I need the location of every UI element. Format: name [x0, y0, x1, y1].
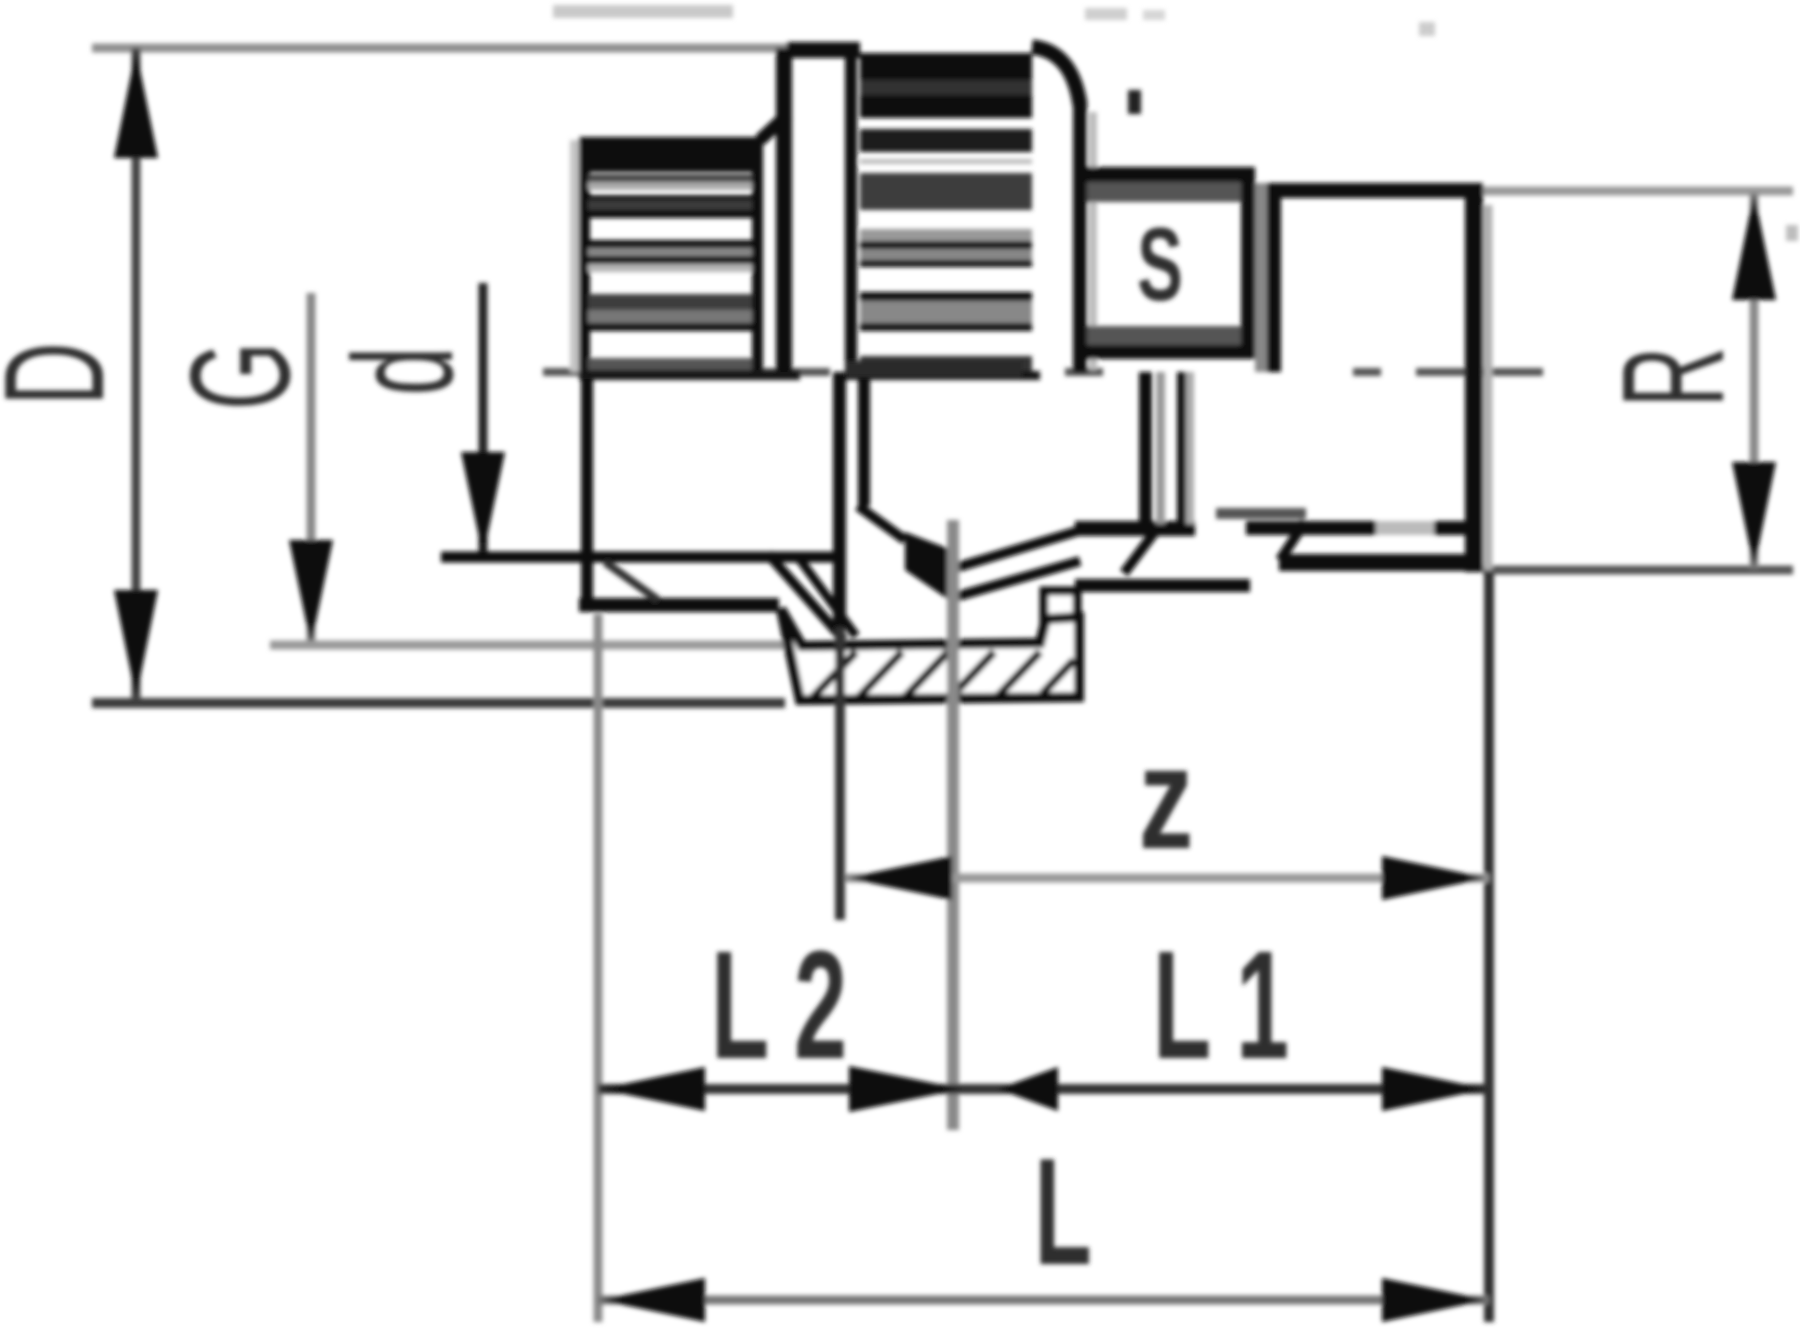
svg-text:z: z: [1139, 717, 1194, 880]
svg-text:d: d: [325, 347, 484, 396]
svg-text:L 2: L 2: [711, 920, 847, 1092]
svg-text:G: G: [162, 342, 321, 410]
svg-text:R: R: [1593, 347, 1754, 408]
svg-text:S: S: [1137, 206, 1183, 323]
svg-text:L: L: [1034, 1127, 1092, 1296]
svg-text:D: D: [0, 342, 134, 406]
svg-text:L 1: L 1: [1153, 920, 1289, 1092]
